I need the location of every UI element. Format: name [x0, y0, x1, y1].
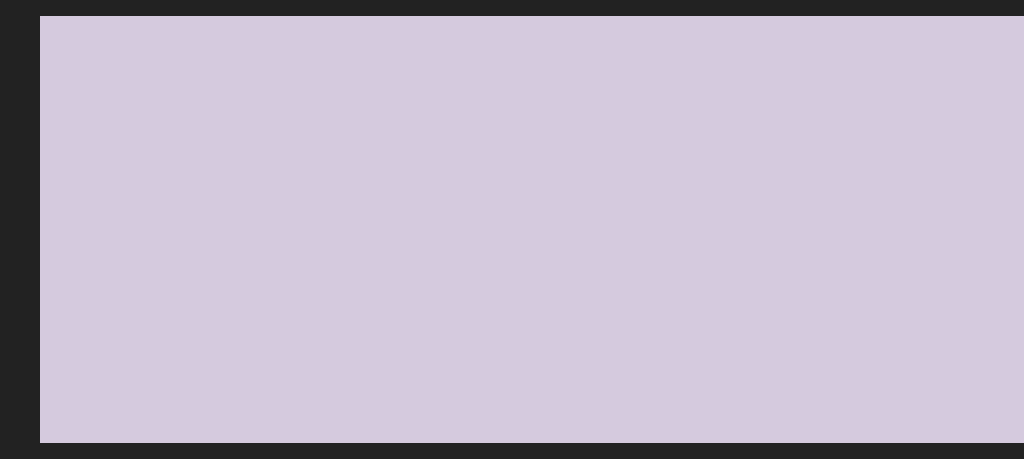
render-canvas: [40, 16, 1024, 443]
aerial-villa-complex-render: [40, 16, 1024, 443]
